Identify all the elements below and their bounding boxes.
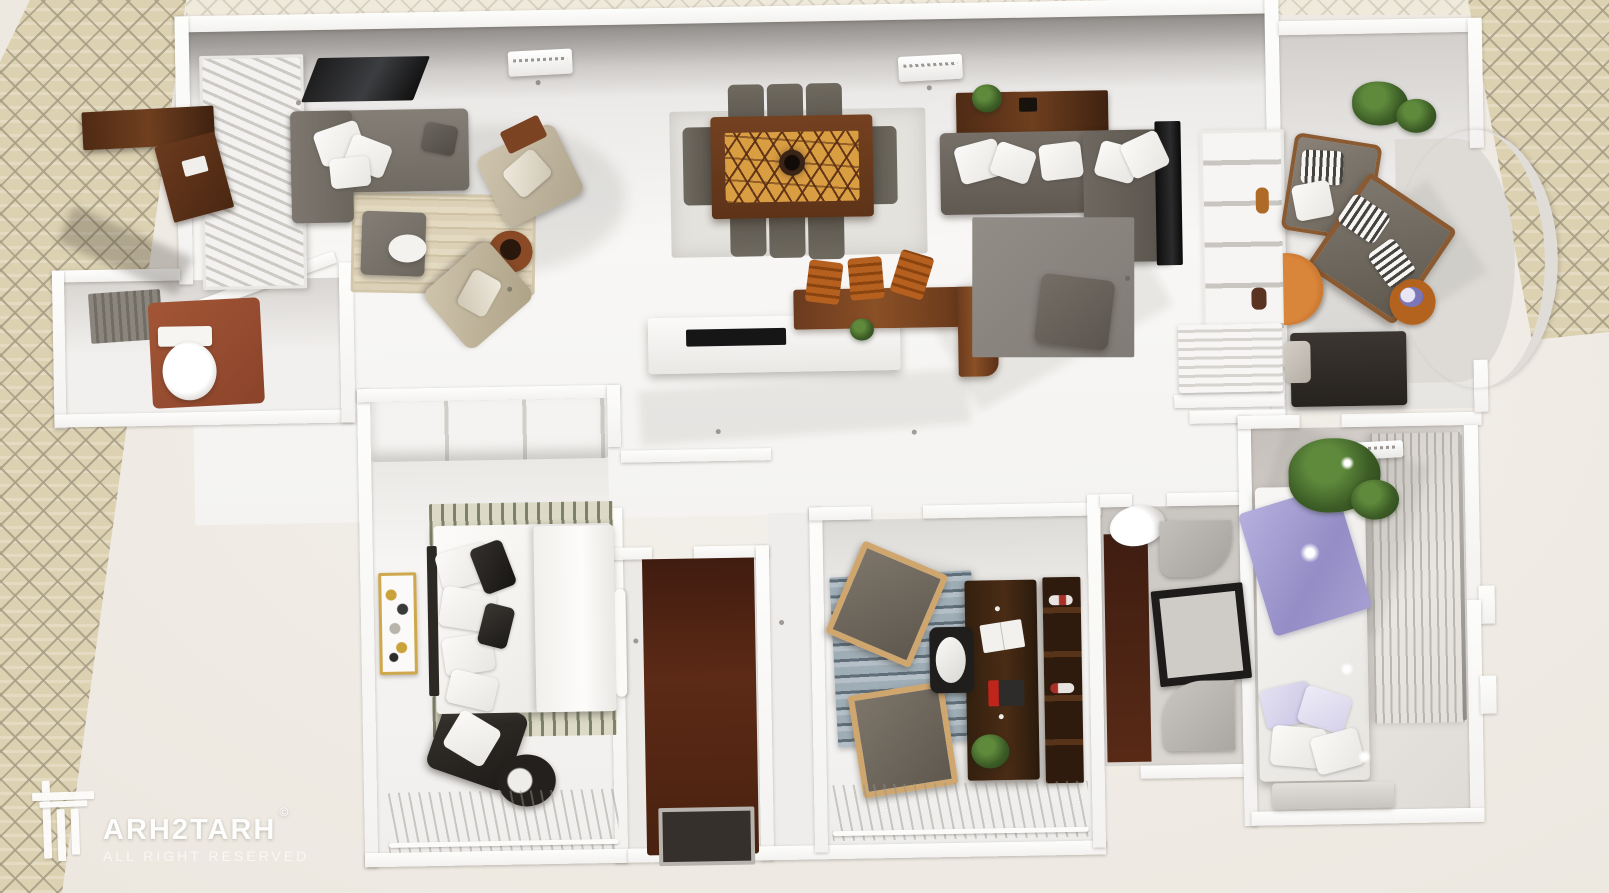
living-wall-tv	[301, 56, 430, 102]
floor-speck	[779, 620, 784, 625]
sofa-cushion-light	[1284, 341, 1311, 383]
wall-bedroom1-right-upper	[607, 385, 621, 447]
bathroom-mirror	[1151, 582, 1253, 687]
wall-bathroom-top	[1100, 494, 1132, 508]
wardrobe-cabinets	[370, 398, 608, 462]
entry-doormat	[658, 807, 755, 867]
louver-panel	[1178, 323, 1283, 393]
bookshelf-books	[1049, 595, 1073, 605]
wall-shelf-low	[1174, 393, 1284, 408]
bedroom2-curtain-wall	[1370, 432, 1467, 724]
tagline: ALL RIGHT RESERVED	[103, 848, 309, 864]
brand-name: ARH2TARH©	[103, 816, 309, 845]
bathroom-dark-floor	[1104, 534, 1152, 763]
corridor-floor	[768, 513, 815, 847]
pillar-logo-icon	[32, 779, 101, 865]
sofa-pillow	[1038, 141, 1084, 182]
shelf-book-dark	[1251, 287, 1266, 309]
shelf-book-orange	[1256, 187, 1269, 213]
ceiling-speck	[536, 80, 541, 85]
dining-chair	[808, 213, 845, 260]
wall-office-top-left	[809, 506, 871, 520]
office-chair-seat	[935, 637, 966, 684]
bed1-duvet	[533, 525, 616, 712]
white-pillow	[1291, 179, 1335, 222]
floor-speck	[716, 429, 721, 434]
sofa-pillow-dark	[420, 121, 459, 157]
door-handle	[633, 639, 638, 644]
floor-plan-render: { "watermark": { "brand": "ARH2TARH", "c…	[0, 0, 1609, 893]
entry-door-leaf	[614, 589, 627, 697]
sofa-pillow	[329, 155, 372, 189]
bar-stool	[805, 259, 844, 305]
bedroom1-art-frame	[378, 572, 418, 675]
floor-speck	[912, 430, 917, 435]
ac-unit-living	[508, 48, 573, 76]
wall-wing-right-upper	[1468, 18, 1484, 148]
wall-bathroom-top-right	[1167, 492, 1245, 506]
wall-bathroom-bottom	[1141, 764, 1249, 779]
dining-chair	[769, 212, 806, 259]
wall-bedroom2-top-left	[1238, 415, 1300, 429]
apartment-plan	[32, 0, 1527, 893]
family-ottoman	[1034, 273, 1116, 351]
wall-bedroom2-top-right	[1342, 412, 1482, 427]
wall-bedroom2-bottom	[1251, 808, 1484, 826]
ac-unit-family	[898, 54, 963, 82]
desk-decor	[999, 714, 1004, 719]
desk-red-item	[988, 680, 1024, 707]
console-decor	[1019, 97, 1037, 111]
wall-bedroom2-right-upper	[1464, 425, 1481, 600]
floor-speck	[296, 100, 301, 105]
desk-decor	[995, 606, 1000, 611]
ceiling-speck	[927, 85, 932, 90]
office-bookshelf	[1042, 577, 1084, 784]
bar-stool	[847, 256, 885, 301]
watermark: ARH2TARH© ALL RIGHT RESERVED	[33, 780, 309, 864]
bookshelf-books	[1050, 683, 1074, 693]
office-armchair-2	[848, 681, 959, 799]
watermark-text: ARH2TARH© ALL RIGHT RESERVED	[103, 816, 309, 864]
wall-entry-top-left	[610, 547, 652, 560]
floor-speck	[1125, 276, 1130, 281]
kitchen-cooktop	[686, 328, 786, 347]
copyright-icon: ©	[279, 805, 290, 819]
floor-speck	[507, 287, 512, 292]
wall-bedroom2-right-notch2	[1480, 676, 1497, 714]
bedroom2-bench	[1272, 781, 1394, 809]
